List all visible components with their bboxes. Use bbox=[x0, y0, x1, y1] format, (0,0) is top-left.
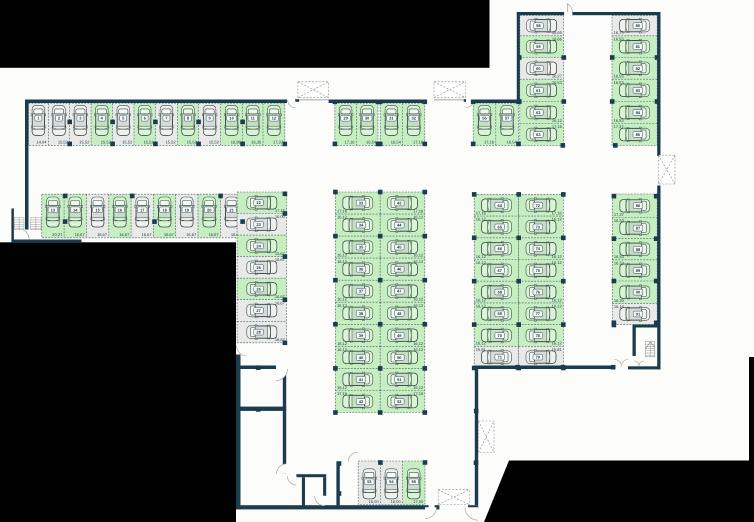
svg-text:17,16: 17,16 bbox=[413, 140, 424, 145]
svg-text:16,12: 16,12 bbox=[337, 253, 348, 258]
svg-text:21: 21 bbox=[229, 207, 234, 212]
svg-text:87: 87 bbox=[636, 226, 641, 231]
svg-text:17,16: 17,16 bbox=[552, 124, 563, 129]
svg-text:16,12: 16,12 bbox=[552, 297, 563, 302]
svg-text:67: 67 bbox=[497, 268, 502, 273]
svg-text:46: 46 bbox=[397, 267, 402, 272]
svg-text:89: 89 bbox=[636, 268, 641, 273]
svg-text:39: 39 bbox=[359, 333, 364, 338]
svg-text:25: 25 bbox=[256, 265, 261, 270]
svg-text:16,12: 16,12 bbox=[337, 297, 348, 302]
svg-text:16,54: 16,54 bbox=[391, 140, 402, 145]
svg-text:32: 32 bbox=[411, 116, 416, 121]
svg-text:24: 24 bbox=[256, 243, 261, 248]
svg-text:16,12: 16,12 bbox=[337, 341, 348, 346]
svg-text:58: 58 bbox=[536, 23, 541, 28]
svg-text:17,16: 17,16 bbox=[476, 211, 487, 216]
svg-text:61: 61 bbox=[536, 88, 541, 93]
svg-text:16,12: 16,12 bbox=[552, 217, 563, 222]
svg-text:16,12: 16,12 bbox=[413, 385, 424, 390]
svg-text:15,81: 15,81 bbox=[476, 347, 487, 352]
svg-text:16,35: 16,35 bbox=[251, 140, 262, 145]
svg-text:51: 51 bbox=[397, 377, 402, 382]
svg-text:55: 55 bbox=[411, 479, 416, 484]
svg-text:35: 35 bbox=[359, 245, 364, 250]
svg-text:16,12: 16,12 bbox=[476, 260, 487, 265]
svg-text:14,04: 14,04 bbox=[36, 140, 47, 145]
svg-text:59: 59 bbox=[536, 44, 541, 49]
svg-text:16,12: 16,12 bbox=[552, 260, 563, 265]
svg-text:17,00: 17,00 bbox=[413, 499, 424, 504]
svg-text:40: 40 bbox=[359, 355, 364, 360]
svg-text:76: 76 bbox=[536, 290, 541, 295]
svg-text:16,67: 16,67 bbox=[142, 232, 153, 237]
svg-text:79: 79 bbox=[536, 355, 541, 360]
svg-text:16,53: 16,53 bbox=[552, 80, 563, 85]
svg-text:17,16: 17,16 bbox=[413, 391, 424, 396]
svg-text:16,12: 16,12 bbox=[413, 297, 424, 302]
svg-text:17,16: 17,16 bbox=[337, 209, 348, 214]
svg-text:15,52: 15,52 bbox=[209, 140, 220, 145]
svg-text:15,81: 15,81 bbox=[552, 347, 563, 352]
svg-text:65: 65 bbox=[497, 224, 502, 229]
svg-text:74: 74 bbox=[536, 246, 541, 251]
svg-text:72: 72 bbox=[536, 203, 541, 208]
svg-text:17: 17 bbox=[140, 207, 145, 212]
svg-text:43: 43 bbox=[397, 201, 402, 206]
svg-text:16,67: 16,67 bbox=[75, 232, 86, 237]
svg-text:23: 23 bbox=[256, 222, 261, 227]
svg-text:15,52: 15,52 bbox=[166, 140, 177, 145]
svg-text:16,12: 16,12 bbox=[476, 304, 487, 309]
svg-text:16,00: 16,00 bbox=[369, 499, 380, 504]
svg-text:16,27: 16,27 bbox=[552, 74, 563, 79]
svg-text:91: 91 bbox=[636, 312, 641, 317]
svg-text:69: 69 bbox=[497, 311, 502, 316]
svg-text:16,12: 16,12 bbox=[413, 215, 424, 220]
svg-text:16,12: 16,12 bbox=[337, 215, 348, 220]
svg-text:33: 33 bbox=[359, 201, 364, 206]
svg-text:57: 57 bbox=[505, 116, 510, 121]
svg-text:16,53: 16,53 bbox=[614, 260, 625, 265]
svg-text:90: 90 bbox=[636, 290, 641, 295]
svg-text:15,52: 15,52 bbox=[122, 140, 133, 145]
svg-text:16,53: 16,53 bbox=[614, 218, 625, 223]
svg-text:70: 70 bbox=[497, 333, 502, 338]
svg-text:16,12: 16,12 bbox=[476, 217, 487, 222]
svg-text:73: 73 bbox=[536, 224, 541, 229]
svg-text:20,27: 20,27 bbox=[52, 232, 63, 237]
svg-text:34: 34 bbox=[359, 223, 364, 228]
svg-text:16,12: 16,12 bbox=[413, 259, 424, 264]
svg-text:16,66: 16,66 bbox=[552, 36, 563, 41]
svg-text:45: 45 bbox=[397, 245, 402, 250]
svg-text:16,67: 16,67 bbox=[119, 232, 130, 237]
svg-text:17,16: 17,16 bbox=[484, 140, 495, 145]
svg-text:16,67: 16,67 bbox=[164, 232, 175, 237]
svg-text:17,37: 17,37 bbox=[273, 140, 284, 145]
svg-text:15,52: 15,52 bbox=[79, 140, 90, 145]
svg-text:83: 83 bbox=[636, 88, 641, 93]
svg-text:16,67: 16,67 bbox=[209, 232, 220, 237]
svg-text:82: 82 bbox=[636, 66, 641, 71]
svg-text:60: 60 bbox=[536, 66, 541, 71]
svg-text:19: 19 bbox=[185, 207, 190, 212]
svg-text:53: 53 bbox=[367, 479, 372, 484]
svg-text:16: 16 bbox=[118, 207, 123, 212]
svg-text:78: 78 bbox=[536, 333, 541, 338]
svg-text:16,12: 16,12 bbox=[476, 297, 487, 302]
svg-text:15,52: 15,52 bbox=[187, 140, 198, 145]
svg-text:13: 13 bbox=[51, 207, 56, 212]
svg-text:16,53: 16,53 bbox=[614, 74, 625, 79]
svg-text:85: 85 bbox=[636, 132, 641, 137]
svg-text:29: 29 bbox=[343, 116, 348, 121]
svg-text:17,16: 17,16 bbox=[337, 391, 348, 396]
svg-text:16,54: 16,54 bbox=[366, 140, 377, 145]
svg-text:16,86: 16,86 bbox=[231, 140, 242, 145]
svg-text:17,37: 17,37 bbox=[614, 124, 625, 129]
svg-text:22: 22 bbox=[256, 200, 261, 205]
svg-text:15,52: 15,52 bbox=[58, 140, 69, 145]
svg-text:68: 68 bbox=[497, 290, 502, 295]
svg-text:16,75: 16,75 bbox=[614, 30, 625, 35]
svg-text:80: 80 bbox=[636, 23, 641, 28]
svg-text:64: 64 bbox=[497, 203, 502, 208]
svg-text:75: 75 bbox=[536, 268, 541, 273]
svg-text:16,12: 16,12 bbox=[476, 341, 487, 346]
svg-text:15,52: 15,52 bbox=[101, 140, 112, 145]
svg-text:16,12: 16,12 bbox=[552, 254, 563, 259]
svg-text:20: 20 bbox=[207, 207, 212, 212]
svg-text:63: 63 bbox=[536, 132, 541, 137]
svg-text:66: 66 bbox=[497, 246, 502, 251]
svg-text:16,12: 16,12 bbox=[552, 118, 563, 123]
svg-text:88: 88 bbox=[636, 247, 641, 252]
svg-text:16,20: 16,20 bbox=[614, 298, 625, 303]
svg-text:16,16: 16,16 bbox=[614, 304, 625, 309]
svg-text:16,53: 16,53 bbox=[614, 80, 625, 85]
svg-text:18: 18 bbox=[162, 207, 167, 212]
svg-text:16,12: 16,12 bbox=[552, 341, 563, 346]
svg-text:16,12: 16,12 bbox=[337, 259, 348, 264]
svg-text:37: 37 bbox=[359, 289, 364, 294]
svg-text:16,53: 16,53 bbox=[614, 254, 625, 259]
svg-text:62: 62 bbox=[536, 110, 541, 115]
svg-text:77: 77 bbox=[536, 311, 541, 316]
svg-text:49: 49 bbox=[397, 333, 402, 338]
svg-text:41: 41 bbox=[359, 377, 364, 382]
svg-text:16,00: 16,00 bbox=[391, 499, 402, 504]
svg-text:16,12: 16,12 bbox=[413, 341, 424, 346]
svg-text:16,12: 16,12 bbox=[476, 254, 487, 259]
svg-text:38: 38 bbox=[359, 311, 364, 316]
svg-text:16,65: 16,65 bbox=[552, 30, 563, 35]
svg-text:86: 86 bbox=[636, 203, 641, 208]
svg-text:16,53: 16,53 bbox=[614, 36, 625, 41]
svg-text:16,67: 16,67 bbox=[186, 232, 197, 237]
svg-text:31: 31 bbox=[389, 116, 394, 121]
svg-text:14: 14 bbox=[73, 207, 78, 212]
svg-text:16,12: 16,12 bbox=[413, 347, 424, 352]
svg-text:30: 30 bbox=[365, 116, 370, 121]
svg-text:16,12: 16,12 bbox=[552, 304, 563, 309]
svg-text:17,27: 17,27 bbox=[614, 212, 625, 217]
svg-text:54: 54 bbox=[389, 479, 394, 484]
svg-text:16,12: 16,12 bbox=[413, 303, 424, 308]
svg-text:15: 15 bbox=[95, 207, 100, 212]
svg-text:26: 26 bbox=[256, 286, 261, 291]
svg-text:50: 50 bbox=[397, 355, 402, 360]
svg-text:16,12: 16,12 bbox=[337, 385, 348, 390]
svg-text:15,52: 15,52 bbox=[144, 140, 155, 145]
svg-text:81: 81 bbox=[636, 44, 641, 49]
svg-text:28: 28 bbox=[256, 330, 261, 335]
svg-text:27: 27 bbox=[256, 308, 261, 313]
svg-text:44: 44 bbox=[397, 223, 402, 228]
svg-text:17,16: 17,16 bbox=[413, 209, 424, 214]
svg-text:42: 42 bbox=[359, 399, 364, 404]
svg-text:48: 48 bbox=[397, 311, 402, 316]
svg-text:84: 84 bbox=[636, 110, 641, 115]
svg-text:71: 71 bbox=[497, 355, 502, 360]
svg-text:16,53: 16,53 bbox=[614, 118, 625, 123]
svg-text:10: 10 bbox=[229, 116, 234, 121]
svg-text:16,12: 16,12 bbox=[337, 347, 348, 352]
svg-text:16,12: 16,12 bbox=[337, 303, 348, 308]
svg-text:47: 47 bbox=[397, 289, 402, 294]
svg-text:12: 12 bbox=[272, 116, 277, 121]
svg-text:56: 56 bbox=[482, 116, 487, 121]
svg-text:17,16: 17,16 bbox=[552, 211, 563, 216]
svg-text:17,16: 17,16 bbox=[344, 140, 355, 145]
svg-text:16,12: 16,12 bbox=[413, 253, 424, 258]
svg-text:52: 52 bbox=[397, 399, 402, 404]
svg-text:16,54: 16,54 bbox=[507, 140, 518, 145]
svg-text:36: 36 bbox=[359, 267, 364, 272]
svg-text:16,67: 16,67 bbox=[97, 232, 108, 237]
